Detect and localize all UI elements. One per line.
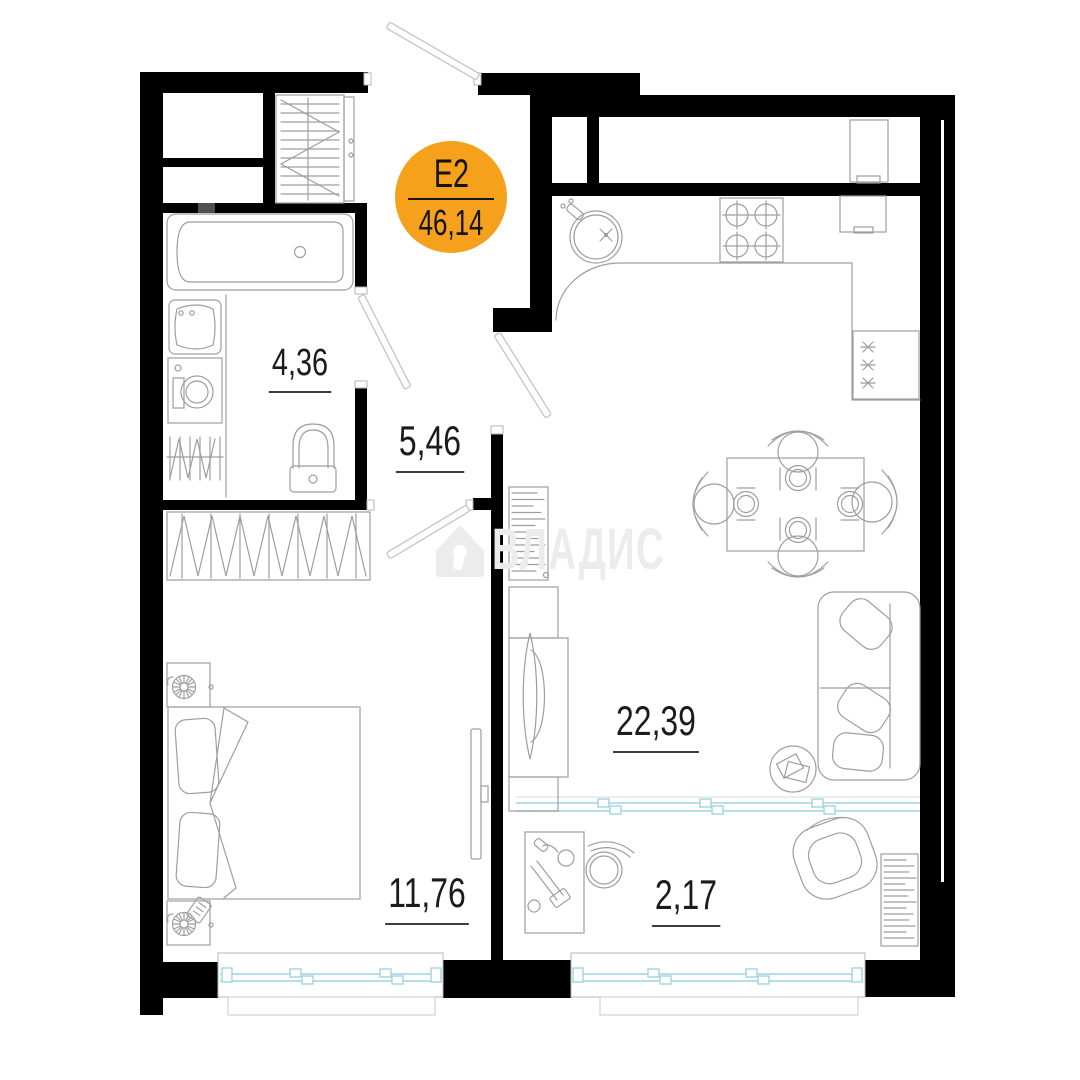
nightstand bbox=[167, 896, 213, 945]
nightstand bbox=[167, 663, 213, 707]
window-bedroom bbox=[218, 953, 443, 1015]
bed bbox=[168, 707, 360, 899]
wall bbox=[473, 498, 493, 510]
toilet bbox=[290, 424, 336, 492]
towel-rack bbox=[167, 437, 223, 480]
room-area-label-bedroom: 11,76 bbox=[372, 872, 482, 925]
unit-badge: E2 46,14 bbox=[395, 141, 507, 253]
bathtub bbox=[167, 214, 353, 290]
wall bbox=[587, 117, 599, 187]
floor-plan: ВЛАДИС E2 46,14 4,36 5,46 22,39 11,76 2,… bbox=[0, 0, 1080, 1080]
watermark-house-icon bbox=[436, 525, 484, 577]
tv-console bbox=[509, 587, 568, 811]
fridge bbox=[853, 331, 919, 399]
side-table bbox=[770, 746, 816, 792]
room-area-label-bathroom: 4,36 bbox=[259, 344, 341, 393]
table-lamp bbox=[168, 676, 196, 699]
wall bbox=[263, 93, 275, 213]
wall bbox=[552, 183, 920, 196]
armchair bbox=[785, 808, 885, 907]
wall bbox=[163, 500, 370, 510]
wall bbox=[865, 960, 955, 997]
room-area-label-kitchen-living: 22,39 bbox=[599, 700, 712, 753]
wall bbox=[140, 72, 368, 93]
washing-machine bbox=[168, 358, 222, 423]
vent-shaft bbox=[198, 203, 215, 213]
wall bbox=[163, 203, 367, 213]
wall bbox=[163, 962, 218, 998]
wall bbox=[163, 158, 263, 167]
pillow bbox=[175, 812, 220, 889]
window-balcony bbox=[571, 953, 865, 1015]
wall-seam bbox=[941, 120, 944, 882]
entry-closet bbox=[276, 95, 354, 203]
desk-chair bbox=[586, 842, 634, 888]
dining-chair bbox=[693, 472, 734, 536]
bathroom-door bbox=[358, 294, 411, 389]
kitchen-sink bbox=[561, 199, 622, 263]
wall bbox=[491, 434, 503, 964]
wardrobe bbox=[167, 512, 370, 580]
wall bbox=[920, 95, 955, 997]
entry-door bbox=[386, 22, 480, 80]
unit-number: E2 bbox=[433, 154, 468, 194]
wall bbox=[478, 73, 640, 95]
bedroom-tv bbox=[471, 729, 488, 859]
table-lamp bbox=[168, 913, 196, 936]
wall bbox=[530, 95, 928, 117]
watermark-text: ВЛАДИС bbox=[492, 521, 665, 579]
wall bbox=[493, 308, 552, 332]
badge-divider bbox=[408, 198, 494, 200]
wall bbox=[530, 95, 552, 320]
wall bbox=[443, 960, 571, 998]
room-area-label-hallway: 5,46 bbox=[385, 420, 475, 473]
sofa bbox=[818, 592, 920, 780]
wall bbox=[355, 203, 367, 293]
doors bbox=[358, 22, 551, 559]
desk bbox=[525, 832, 584, 933]
bathroom-sink bbox=[169, 300, 221, 354]
wall bbox=[140, 72, 163, 1015]
unit-total-area: 46,14 bbox=[419, 205, 484, 241]
wall bbox=[355, 387, 367, 510]
stove bbox=[720, 198, 783, 262]
kitchen-cabinet bbox=[840, 120, 888, 233]
radiator-shelf bbox=[881, 854, 918, 946]
place-settings bbox=[734, 466, 863, 543]
room-area-label-balcony: 2,17 bbox=[641, 874, 731, 927]
tv bbox=[523, 633, 544, 759]
living-room-door bbox=[494, 332, 551, 418]
